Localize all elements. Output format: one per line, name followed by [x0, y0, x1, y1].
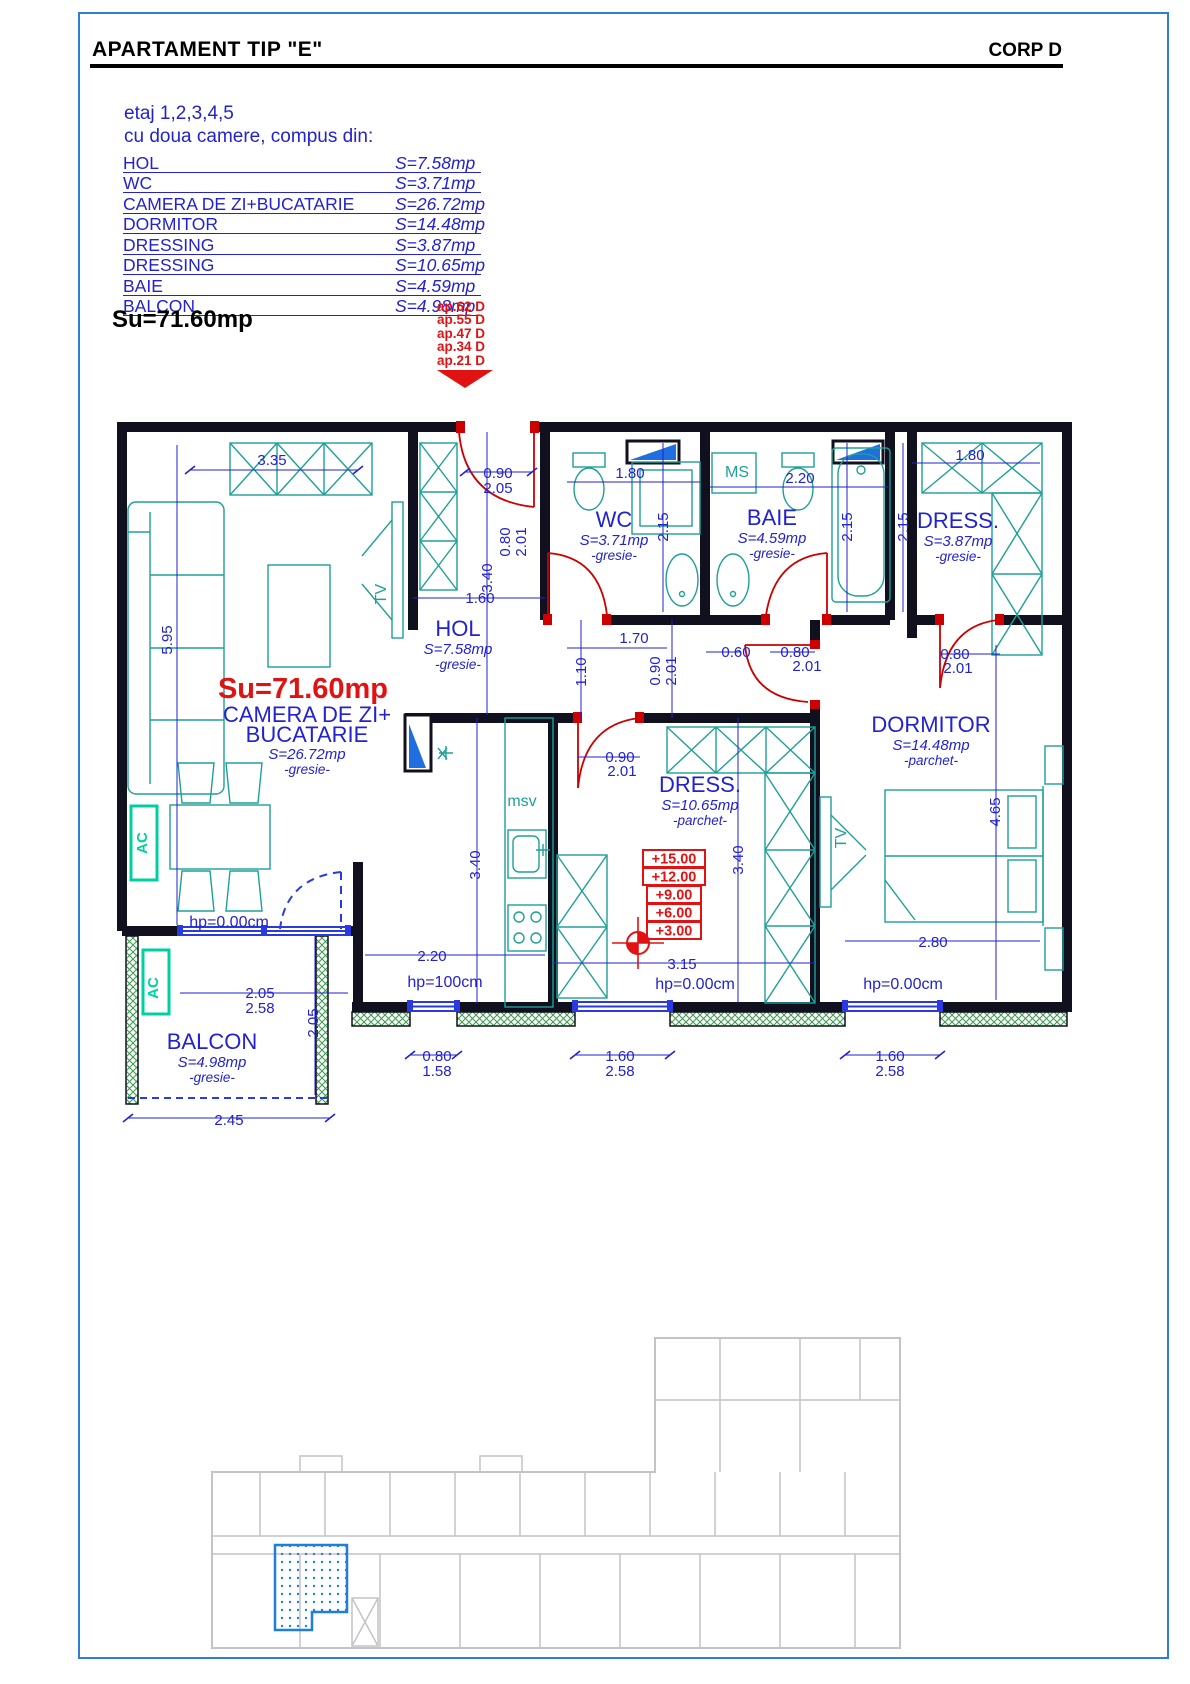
plan-label: 3.15: [667, 956, 696, 973]
plan-label: MS: [725, 464, 749, 481]
plan-label: 2.01: [663, 656, 680, 685]
plan-label: -gresie-: [935, 549, 981, 564]
plan-label: 5.95: [159, 625, 176, 654]
plan-label: 2.15: [895, 512, 912, 541]
page: APARTAMENT TIP "E" CORP D etaj 1,2,3,4,5…: [0, 0, 1190, 1684]
plan-label: HOL: [435, 616, 480, 641]
plan-label: TV: [373, 583, 390, 604]
plan-label: 2.05: [305, 1008, 322, 1037]
plan-label: hp=100cm: [407, 974, 482, 991]
plan-label: DORMITOR: [871, 712, 990, 737]
plan-label: 2.58: [605, 1063, 634, 1080]
plan-label: 2.15: [655, 512, 672, 541]
plan-label: AC: [134, 832, 151, 854]
plan-label: S=7.58mp: [424, 641, 493, 658]
balcony-door: [280, 872, 341, 929]
plan-label: DRESS.: [917, 508, 999, 533]
plan-label: 2.15: [839, 512, 856, 541]
boiler-icon: [438, 746, 453, 760]
plan-label: 2.01: [792, 658, 821, 675]
plan-label: S=10.65mp: [661, 797, 738, 814]
plan-label: BALCON: [167, 1029, 257, 1054]
plan-label: msv: [507, 793, 536, 810]
plan-label: 2.01: [607, 763, 636, 780]
level-markers: +15.00+12.00+9.00+6.00+3.00: [643, 850, 705, 940]
plan-label: TV: [833, 827, 850, 848]
plan-label: 1.80: [955, 447, 984, 464]
plan-label: hp=0.00cm: [189, 914, 269, 931]
plan-label: 2.20: [785, 470, 814, 487]
plan-label: -parchet-: [904, 753, 959, 768]
plan-label: BUCATARIE: [246, 722, 369, 747]
plan-label: -gresie-: [189, 1070, 235, 1085]
floorplan-drawing: +15.00+12.00+9.00+6.00+3.00 HOLS=7.58mp-…: [0, 0, 1190, 1684]
plan-label: -parchet-: [673, 813, 728, 828]
plan-label: 2.05: [483, 480, 512, 497]
plan-label: 1.70: [619, 630, 648, 647]
plan-label: BAIE: [747, 505, 797, 530]
plan-label: -gresie-: [749, 546, 795, 561]
plan-label: 2.80: [918, 934, 947, 951]
plan-label: S=4.59mp: [738, 530, 807, 547]
plan-label: AC: [145, 977, 162, 999]
level-value: +3.00: [656, 924, 693, 940]
plan-label: 2.58: [875, 1063, 904, 1080]
plan-label: -gresie-: [284, 762, 330, 777]
plan-label: -gresie-: [435, 657, 481, 672]
plan-label: 3.40: [467, 850, 484, 879]
plan-label: 2.01: [513, 527, 530, 556]
plan-label: 3.35: [257, 452, 286, 469]
plan-label: 2.01: [943, 660, 972, 677]
plan-label: S=3.87mp: [924, 533, 993, 550]
level-value: +6.00: [656, 906, 693, 922]
plan-label: S=26.72mp: [268, 746, 345, 763]
level-value: +9.00: [656, 888, 693, 904]
plan-label: 1.58: [422, 1063, 451, 1080]
plan-label: S=14.48mp: [892, 737, 969, 754]
hatched-walls: [126, 936, 1067, 1104]
plan-label: 0.60: [721, 644, 750, 661]
plan-label: 1.10: [573, 657, 590, 686]
plan-label: 3.40: [479, 563, 496, 592]
plan-label: 1.80: [615, 465, 644, 482]
plan-label: 2.45: [214, 1112, 243, 1129]
level-value: +15.00: [652, 852, 697, 868]
plan-label: WC: [596, 507, 633, 532]
plan-label: 4.65: [987, 797, 1004, 826]
plan-label: hp=0.00cm: [863, 976, 943, 993]
level-value: +12.00: [652, 870, 697, 886]
keyplan-apartment-highlight: [275, 1545, 347, 1630]
plan-label: 2.58: [245, 1000, 274, 1017]
plan-label: hp=0.00cm: [655, 976, 735, 993]
plan-label: 0.90: [647, 656, 664, 685]
plan-label: Su=71.60mp: [218, 673, 388, 705]
plan-label: -gresie-: [591, 548, 637, 563]
plan-label: 2.20: [417, 948, 446, 965]
plan-label: 0.80: [497, 527, 514, 556]
plan-label: 1.60: [465, 590, 494, 607]
plan-label: 3.40: [730, 845, 747, 874]
plan-label: S=3.71mp: [580, 532, 649, 549]
plan-label: DRESS.: [659, 772, 741, 797]
plan-label: S=4.98mp: [178, 1054, 247, 1071]
